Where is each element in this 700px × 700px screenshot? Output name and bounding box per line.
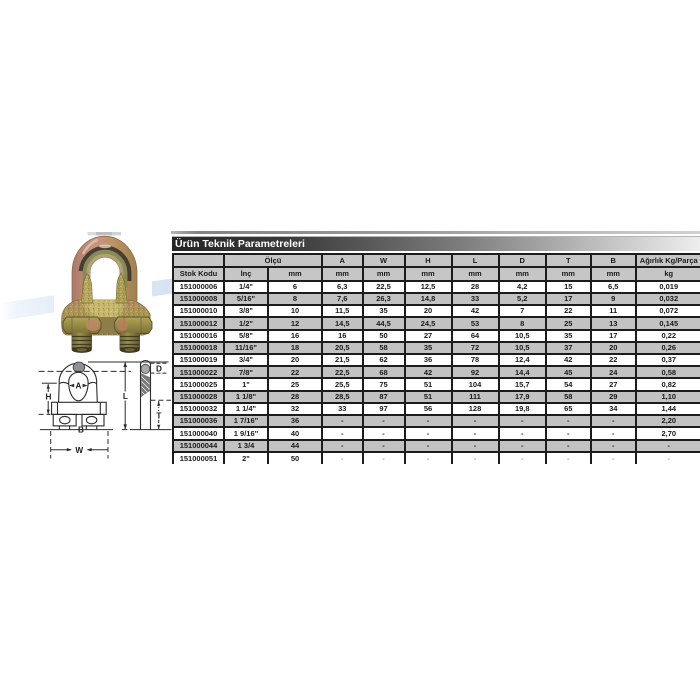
svg-text:B: B [78,426,84,435]
svg-text:W: W [75,446,83,455]
svg-text:H: H [45,393,51,402]
svg-text:T: T [156,411,161,420]
svg-text:D: D [156,365,162,374]
svg-text:A: A [75,382,81,391]
svg-text:L: L [123,392,128,401]
